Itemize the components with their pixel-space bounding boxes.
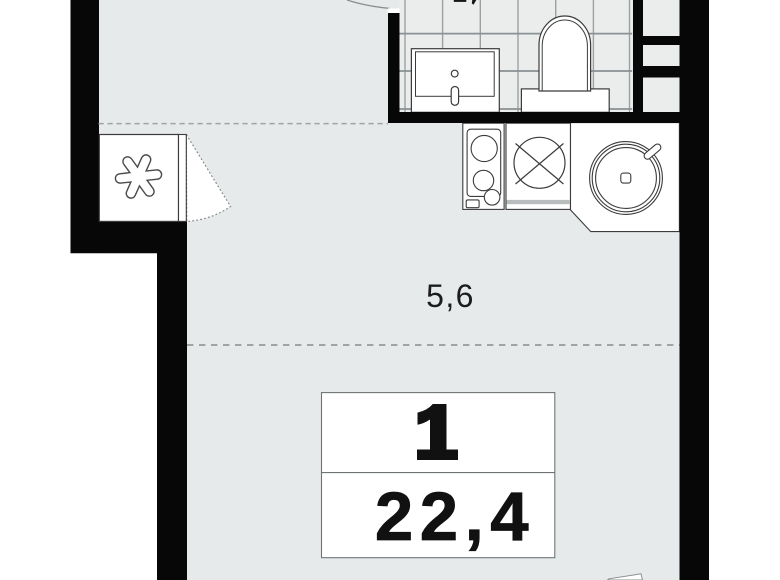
svg-text:22,4: 22,4 (375, 478, 535, 555)
svg-text:5,6: 5,6 (426, 278, 475, 314)
